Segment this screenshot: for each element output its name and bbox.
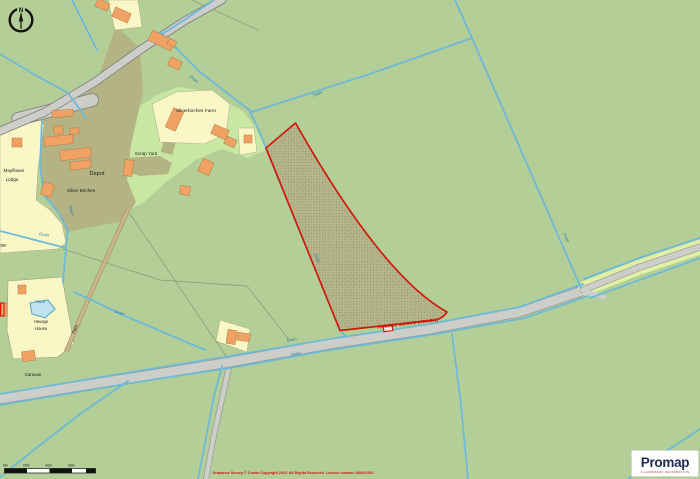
havage-property: [7, 277, 74, 359]
building: [244, 135, 252, 143]
building: [123, 159, 134, 176]
promap-logo-name: Promap: [641, 455, 690, 470]
label-pond: Pond: [35, 299, 46, 304]
label-depot: Depot: [90, 171, 105, 177]
scale-label: 0m: [3, 464, 8, 468]
scale-label: 40m: [46, 464, 53, 468]
scale-bar-segment: [86, 469, 96, 474]
scale-label: 60m: [68, 464, 75, 468]
promap-logo-tagline: A LANDMARK INFORMATION: [641, 470, 690, 474]
building: [70, 128, 79, 135]
label-silver-birches: Silver Birches: [67, 188, 96, 193]
building: [18, 285, 26, 294]
scale-bar-segment: [5, 469, 28, 474]
promap-logo: Promap A LANDMARK INFORMATION: [632, 451, 699, 477]
scale-label: 20m: [23, 464, 30, 468]
attribution-text: Ordnance Survey © Crown Copyright 2022. …: [213, 471, 374, 475]
building: [12, 138, 22, 147]
building: [179, 185, 190, 196]
building: [237, 332, 251, 342]
building: [226, 329, 237, 344]
building: [21, 350, 35, 362]
map-canvas[interactable]: Silverbirches Farm Scrap Yard Depot Silv…: [0, 0, 700, 479]
map-viewport: Silverbirches Farm Scrap Yard Depot Silv…: [0, 0, 700, 479]
label-silverbirches-farm: Silverbirches Farm: [176, 108, 216, 114]
building: [52, 109, 73, 117]
label-mayflower-1: Mayflower: [4, 168, 25, 173]
label-scrap-yard: Scrap Yard: [135, 151, 158, 156]
building: [54, 126, 64, 135]
scale-bar-segment: [50, 469, 73, 474]
label-havage-2: House: [35, 326, 48, 331]
label-mayflower-2: Lodge: [6, 177, 19, 182]
label-caravan: Caravan: [25, 372, 42, 377]
label-lane-fragment: ne: [1, 243, 7, 249]
label-havage-1: Havage: [34, 319, 49, 324]
